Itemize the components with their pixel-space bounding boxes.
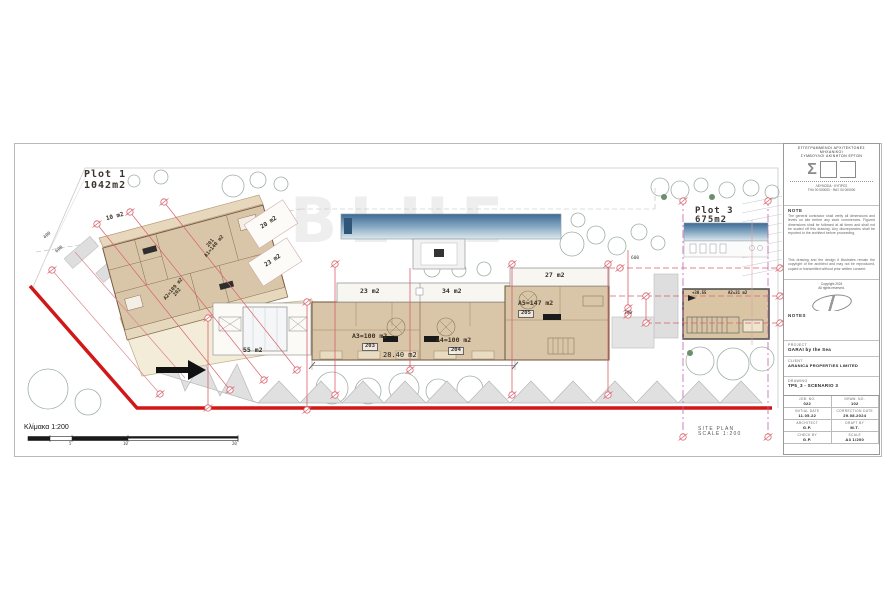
logo-divider — [790, 181, 873, 182]
annex-level: +30.55 — [692, 291, 706, 295]
scalebar-tick-5: 5 — [69, 442, 71, 446]
job-no-cell: JOB. NO. 022 — [784, 396, 832, 408]
plot1-label: Plot 1 1042m2 — [84, 170, 126, 191]
tb-info-table: JOB. NO. 022 DRAW. NO. 102 INITIAL DATE … — [784, 395, 879, 444]
note-heading: NOTE — [788, 208, 875, 213]
dim-building-width: 28.40 m2 — [383, 352, 417, 359]
copyright-line2: All rights reserved. — [788, 286, 875, 290]
room-34m2: 34 m2 — [442, 288, 462, 295]
tb-client: CLIENT ARANICA PROPERTIES LIMITED — [784, 357, 879, 377]
draft-by-value: M.T. — [833, 425, 878, 430]
unit-205-no: 205 — [518, 310, 534, 318]
dim-28-40 — [309, 360, 518, 370]
sheet-caption: SITE PLAN SCALE 1:200 — [698, 427, 742, 438]
tb-copyright: Copyright 2024 All rights reserved. — [784, 280, 879, 291]
unit-203-area: A3=100 m2 — [352, 333, 387, 340]
firm-line1: ΕΓΓΕΓΡΑΜΜΕΝΟΙ ΑΡΧΙΤΕΚΤΟΝΕΣ ΜΗΧΑΝΙΚΟΙ — [788, 146, 875, 154]
correction-date-cell: CORRECTION DATE 29.08.2024 — [832, 408, 880, 420]
initial-date-value: 11.05.22 — [785, 413, 830, 418]
site-plan-sheet: BLUE — [0, 0, 895, 597]
client-value: ARANICA PROPERTIES LIMITED — [788, 363, 875, 368]
initial-date-cell: INITIAL DATE 11.05.22 — [784, 408, 832, 420]
title-block: ΕΓΓΕΓΡΑΜΜΕΝΟΙ ΑΡΧΙΤΕΚΤΟΝΕΣ ΜΗΧΑΝΙΚΟΙ ΣΥΜ… — [783, 143, 880, 455]
check-by-cell: CHECK BY G.P. — [784, 432, 832, 444]
logo-sigma-glyph: Σ — [807, 162, 817, 177]
tb-stamp-section — [784, 291, 879, 311]
caption-line2: SCALE 1:200 — [698, 432, 742, 437]
architect-cell: ARCHITECT G.P. — [784, 420, 832, 432]
tb-logo-section: ΕΓΓΕΓΡΑΜΜΕΝΟΙ ΑΡΧΙΤΕΚΤΟΝΕΣ ΜΗΧΑΝΙΚΟΙ ΣΥΜ… — [784, 144, 879, 206]
dim-600: 600 — [631, 257, 639, 262]
tb-project: PROJECT GARAI by the Sea — [784, 341, 879, 357]
drawing-value: TP5_3 - SCENARIO 3 — [788, 383, 875, 388]
unit-203-no: 203 — [362, 343, 378, 351]
firm-addr2: ΤΗΛ 00 000000 · ΦΑΞ 00 000000 — [788, 188, 875, 192]
tb-drawing: DRAWING TP5_3 - SCENARIO 3 — [784, 377, 879, 395]
tb-note2-section: This drawing and the design it illustrat… — [784, 256, 879, 280]
scalebar-tick-10: 10 — [123, 442, 128, 446]
plot3-area: 675m2 — [695, 216, 734, 225]
check-by-value: G.P. — [785, 437, 830, 442]
plot3-label: Plot 3 675m2 — [695, 207, 734, 226]
logo-open-box-icon — [840, 161, 856, 178]
scale-cell: SCALE A3 1/200 — [832, 432, 880, 444]
note-paragraph-1: The general contractor shall verify all … — [788, 214, 875, 235]
firm-line2: ΣΥΜΒΟΥΛΟΙ ΑΚΙΝΗΤΩΝ ΕΡΓΩΝ — [788, 154, 875, 158]
tb-note-section: NOTE The general contractor shall verify… — [784, 206, 879, 256]
tb-notes-section: NOTES — [784, 311, 879, 341]
note-paragraph-2: This drawing and the design it illustrat… — [788, 258, 875, 271]
annex-area: A2=31 m2 — [728, 291, 747, 295]
scalebar-tick-20: 20 — [232, 442, 237, 446]
main-pool — [341, 214, 561, 269]
job-no-value: 022 — [785, 401, 830, 406]
unit-205-area: A5=147 m2 — [518, 300, 553, 307]
correction-date-value: 29.08.2024 — [833, 413, 878, 418]
scalebar-label: Κλίμακα 1:200 — [24, 424, 69, 431]
room-55m2: 55 m2 — [243, 347, 263, 354]
scale-bar — [28, 435, 238, 442]
unit-204-no: 204 — [448, 347, 464, 355]
logo-box-icon — [820, 161, 837, 178]
notes-heading: NOTES — [788, 313, 875, 318]
plot1-area: 1042m2 — [84, 181, 126, 192]
draw-no-value: 102 — [833, 401, 878, 406]
draft-by-cell: DRAFT BY M.T. — [832, 420, 880, 432]
signature-stamp — [810, 292, 852, 311]
project-value: GARAI by the Sea — [788, 347, 875, 352]
plot3-pool — [684, 223, 768, 257]
site-plan-linework — [0, 0, 895, 597]
room-23m2: 23 m2 — [360, 288, 380, 295]
building-annex-plot3 — [683, 289, 769, 339]
unit-204-area: A4=100 m2 — [436, 337, 471, 344]
draw-no-cell: DRAW. NO. 102 — [832, 396, 880, 408]
plot1-name: Plot 1 — [84, 170, 126, 181]
room-27m2: 27 m2 — [545, 272, 565, 279]
architect-value: G.P. — [785, 425, 830, 430]
scale-value: A3 1/200 — [833, 437, 878, 442]
firm-logo-icon: Σ — [788, 161, 875, 178]
dim-300: 300 — [624, 312, 632, 317]
